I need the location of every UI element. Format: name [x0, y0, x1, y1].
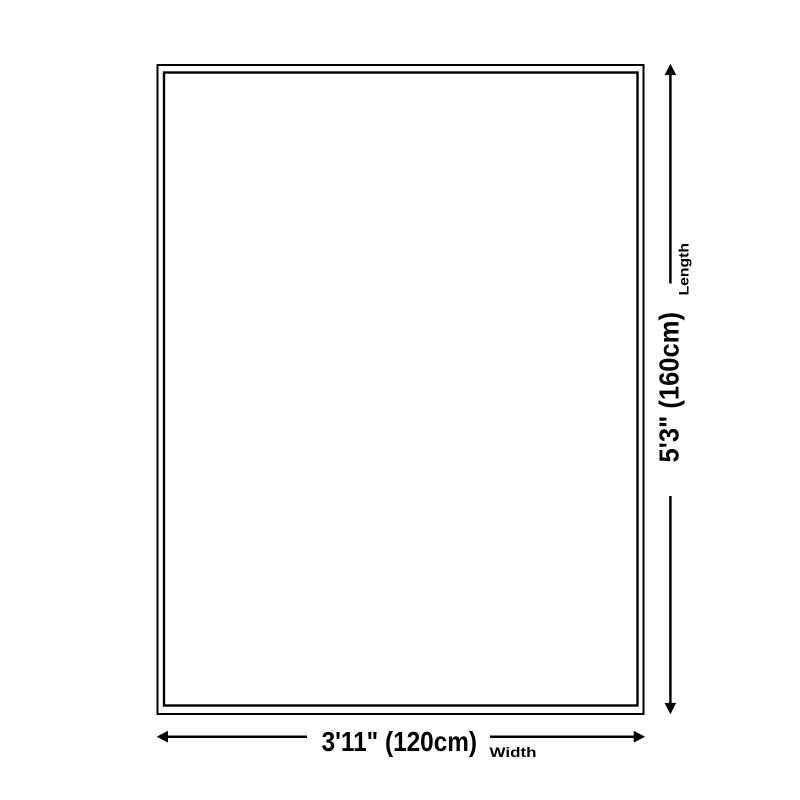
svg-text:Width: Width: [490, 744, 537, 760]
svg-text:3'11" (120cm): 3'11" (120cm): [322, 726, 477, 757]
svg-text:Length: Length: [675, 243, 691, 295]
svg-text:5'3" (160cm): 5'3" (160cm): [653, 312, 684, 463]
